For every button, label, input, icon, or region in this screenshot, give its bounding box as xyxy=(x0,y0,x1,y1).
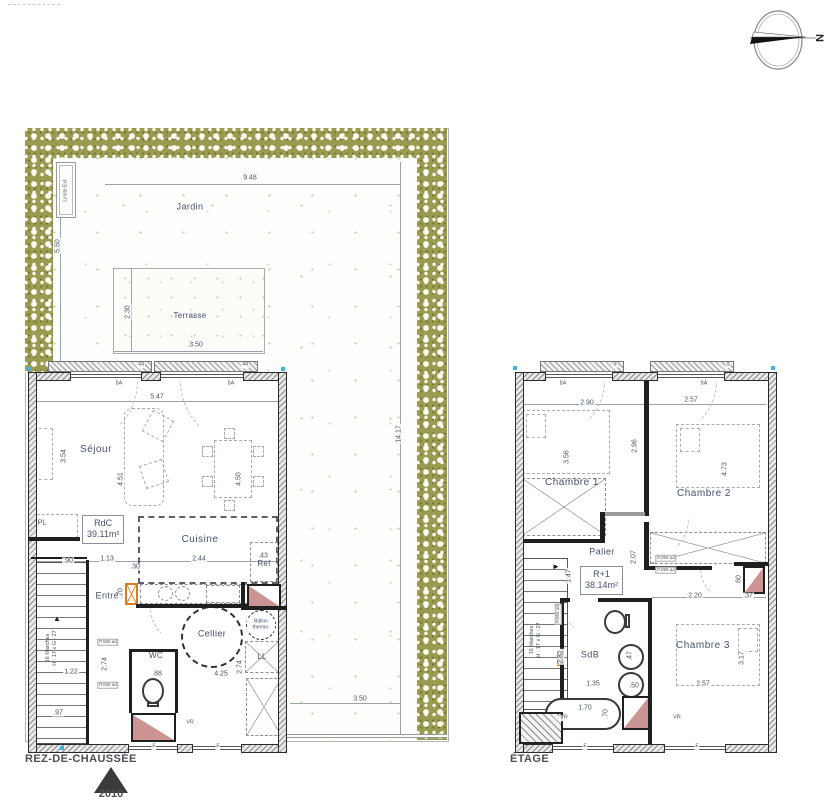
door-leaf xyxy=(605,512,645,516)
dimension-label: 2.96 xyxy=(632,438,639,454)
kitchen-sink xyxy=(158,586,173,601)
survey-mark xyxy=(281,367,285,371)
shower-tray xyxy=(131,713,176,742)
stairs-note-line2: H : 17 x G : 27 xyxy=(536,622,543,657)
dim-line xyxy=(652,597,766,598)
dimension-label: 2.20 xyxy=(687,593,703,600)
chair xyxy=(202,446,213,457)
stair-void xyxy=(519,712,563,744)
duct-shaft xyxy=(743,566,765,594)
electrical-panel xyxy=(125,583,138,605)
palier-wall xyxy=(523,539,605,543)
window xyxy=(664,744,726,753)
cellier-circle xyxy=(181,606,243,668)
storage-zone xyxy=(246,678,282,736)
dining-table xyxy=(214,440,252,498)
survey-mark xyxy=(771,366,775,370)
etage-title: ÉTAGE xyxy=(510,753,549,765)
stairs-note: 16 Marches H : 17 x G : 27 xyxy=(45,630,59,665)
area-value: 38.14m² xyxy=(585,580,618,591)
plumbing-mark xyxy=(557,652,560,666)
rdc-wall-left xyxy=(28,372,37,753)
hedge-border-top xyxy=(25,128,447,158)
kitchen-counter-wall xyxy=(136,604,252,608)
window xyxy=(160,372,244,381)
washbasin xyxy=(618,672,644,698)
water-heater xyxy=(246,610,276,640)
pillow xyxy=(526,414,546,438)
dim-line xyxy=(290,703,400,704)
room-label: Chambre 2 xyxy=(677,489,731,499)
window xyxy=(552,744,614,753)
window-lintel xyxy=(540,361,624,372)
area-level-label: R+1 xyxy=(585,569,618,580)
window-lintel xyxy=(154,361,258,372)
rdc-title: REZ-DE-CHAUSSÉE xyxy=(25,753,137,765)
stairs-note-line2: H : 17 x G : 27 xyxy=(52,630,59,665)
dimension-label: .60 xyxy=(736,574,743,586)
window xyxy=(192,744,242,753)
bedroom-divider-wall xyxy=(644,522,649,570)
survey-mark xyxy=(28,367,32,371)
north-compass-icon: N xyxy=(740,4,826,74)
partition-wall xyxy=(28,537,80,541)
hedge-border-right xyxy=(417,128,447,740)
duct-shaft xyxy=(247,584,281,608)
etage-wall-right xyxy=(768,372,777,753)
terrace-area xyxy=(113,268,265,354)
window xyxy=(70,372,142,381)
duct-shaft xyxy=(622,696,650,730)
dim-line xyxy=(105,184,400,185)
stair-wall xyxy=(86,560,89,744)
bedroom-divider-wall xyxy=(644,381,649,516)
chair xyxy=(224,500,235,511)
sheet-edge-mark xyxy=(8,4,60,5)
stove xyxy=(206,585,240,603)
stair-direction-arrow: ► xyxy=(552,562,560,571)
rdc-wall-top xyxy=(28,372,287,381)
toilet xyxy=(142,678,164,704)
chair xyxy=(253,476,264,487)
palier-wall xyxy=(600,512,605,543)
ch2-ch3-wall xyxy=(648,566,712,570)
dimension-label: 1.35 xyxy=(585,681,601,688)
stairs-note-line1: 16 Marches xyxy=(45,630,52,665)
rdc-wall-right xyxy=(278,372,287,753)
toilet-tank xyxy=(625,614,630,628)
dim-line xyxy=(400,162,401,734)
sdb-wall xyxy=(598,598,652,602)
chair xyxy=(202,476,213,487)
garden-fence-line xyxy=(287,734,447,738)
area-summary-etage: R+1 38.14m² xyxy=(580,566,623,595)
survey-mark xyxy=(513,366,517,370)
fridge-outline xyxy=(250,542,278,582)
window-lintel xyxy=(48,361,152,372)
marker-year: 2010 xyxy=(99,788,123,800)
toilet xyxy=(604,610,626,634)
kitchen-sink xyxy=(175,586,190,601)
etage-wall-left xyxy=(515,372,524,753)
window xyxy=(545,372,613,381)
floor-plan-sheet: N Limite Ext. ▲ xyxy=(0,0,828,800)
boundary-label: Limite Ext. xyxy=(64,178,69,201)
area-level-label: RdC xyxy=(87,518,119,529)
chair xyxy=(253,446,264,457)
dim-line xyxy=(113,351,263,352)
sdb-wall xyxy=(560,598,564,698)
survey-mark xyxy=(60,746,64,750)
boundary-label-box: Limite Ext. xyxy=(56,162,76,218)
room-label: SdB xyxy=(581,651,599,660)
room-label: Palier xyxy=(589,548,614,557)
window xyxy=(128,744,178,753)
window xyxy=(657,372,725,381)
closet-zone xyxy=(522,478,606,536)
pillow xyxy=(738,628,758,652)
north-label: N xyxy=(813,34,825,42)
code-label: VR xyxy=(672,715,682,721)
stairs-note-line1: 16 Marches xyxy=(529,622,536,657)
washing-machine xyxy=(245,641,279,673)
dim-line xyxy=(131,268,132,351)
stairs-note: 16 Marches H : 17 x G : 27 xyxy=(529,622,543,657)
dimension-label: 2.07 xyxy=(631,549,638,565)
closet-pl xyxy=(32,514,78,538)
hedge-border-left xyxy=(25,128,53,373)
stair-direction-arrow: ▲ xyxy=(53,614,61,623)
area-summary-rdc: RdC 39.11m² xyxy=(82,515,124,544)
window-lintel xyxy=(650,361,734,372)
washbasin xyxy=(618,644,644,670)
toilet-tank xyxy=(147,702,159,707)
area-value: 39.11m² xyxy=(87,529,119,540)
partition-wall xyxy=(31,557,87,559)
